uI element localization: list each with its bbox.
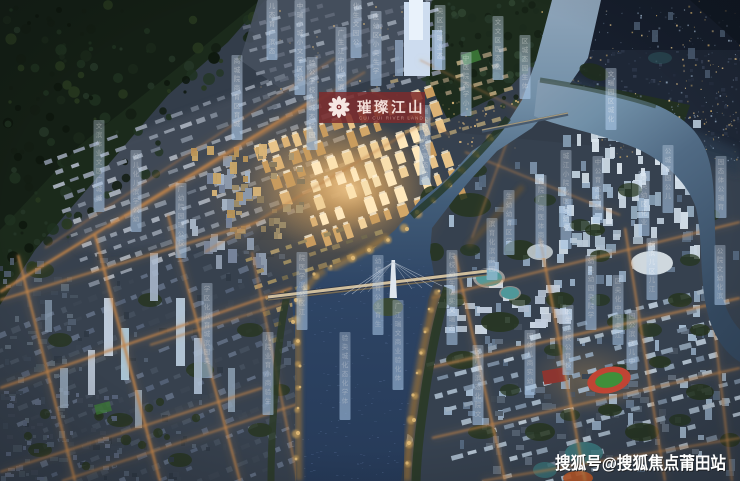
svg-text:璀璨江山: 璀璨江山 <box>357 99 425 117</box>
svg-text:CUI CUI RIVER LAND: CUI CUI RIVER LAND <box>359 116 424 121</box>
svg-text:搜狐号@搜狐焦点莆田站: 搜狐号@搜狐焦点莆田站 <box>555 453 726 473</box>
